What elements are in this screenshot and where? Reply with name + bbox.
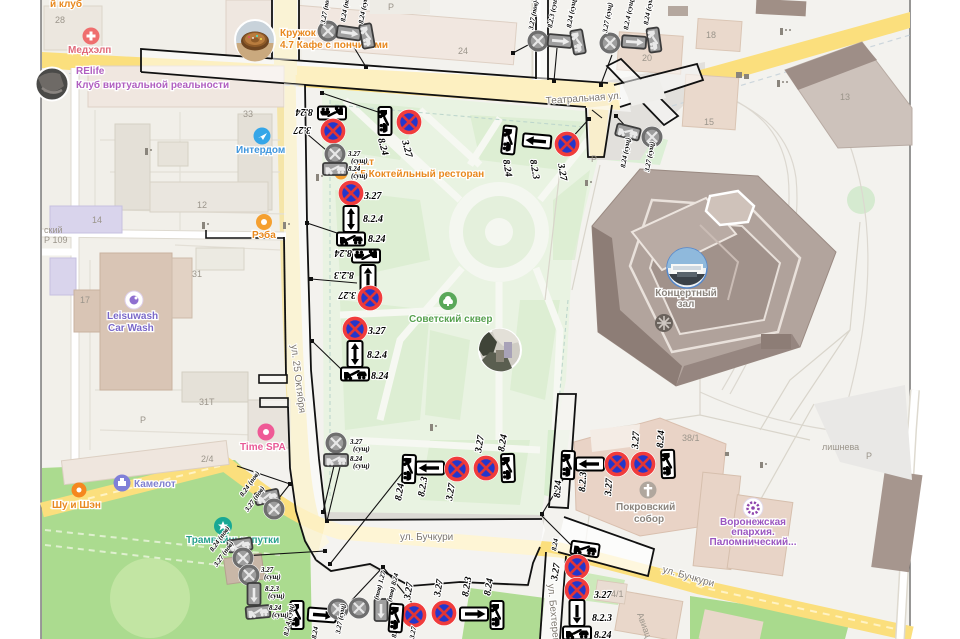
svg-text:(сущ): (сущ) — [351, 157, 368, 165]
svg-text:Паломнический...: Паломнический... — [710, 537, 797, 548]
svg-text:3.27: 3.27 — [338, 289, 358, 300]
svg-text:Р: Р — [866, 451, 872, 461]
svg-text:ский: ский — [44, 225, 63, 235]
svg-text:лишнева: лишнева — [822, 442, 859, 452]
svg-text:Советский сквер: Советский сквер — [409, 314, 492, 325]
svg-text:Leisuwash: Leisuwash — [107, 311, 158, 322]
svg-text:(сущ): (сущ) — [351, 172, 368, 180]
svg-text:8.24: 8.24 — [655, 430, 667, 448]
svg-text:12: 12 — [197, 200, 207, 210]
svg-text:зал: зал — [678, 299, 695, 310]
svg-text:31T: 31T — [199, 397, 215, 407]
svg-text:3.27: 3.27 — [603, 477, 615, 497]
svg-text:8.24: 8.24 — [296, 106, 314, 117]
svg-text:й клуб: й клуб — [50, 0, 82, 10]
svg-text:(сущ): (сущ) — [264, 573, 281, 581]
svg-text:8.2.3: 8.2.3 — [592, 613, 612, 624]
svg-text:3.27: 3.27 — [630, 430, 642, 450]
svg-text:Клуб виртуальной реальности: Клуб виртуальной реальности — [76, 79, 229, 91]
svg-text:8.2.4: 8.2.4 — [367, 350, 387, 361]
svg-text:33: 33 — [243, 109, 253, 119]
svg-text:3.27: 3.27 — [363, 191, 383, 202]
svg-text:Р: Р — [591, 154, 597, 164]
svg-text:(сущ): (сущ) — [353, 445, 370, 453]
svg-text:14: 14 — [92, 215, 102, 225]
svg-text:3.27: 3.27 — [293, 124, 313, 135]
svg-text:8.2.4: 8.2.4 — [363, 214, 383, 225]
svg-text:RElife: RElife — [76, 66, 105, 77]
svg-text:8.24: 8.24 — [368, 234, 386, 245]
svg-text:Шу и Шэн: Шу и Шэн — [52, 500, 101, 511]
svg-text:2/4: 2/4 — [201, 454, 214, 464]
svg-text:8.2.3: 8.2.3 — [577, 471, 589, 492]
svg-text:8.24: 8.24 — [594, 630, 612, 639]
svg-text:Р 109: Р 109 — [44, 235, 68, 245]
svg-text:Car Wash: Car Wash — [108, 323, 154, 334]
svg-text:ул. Бучкури: ул. Бучкури — [400, 532, 453, 543]
svg-text:(сущ): (сущ) — [272, 611, 289, 619]
svg-text:3.27: 3.27 — [593, 590, 613, 601]
svg-text:Time SPA: Time SPA — [240, 442, 286, 453]
svg-text:15: 15 — [704, 117, 714, 127]
svg-text:Покровский: Покровский — [616, 502, 675, 513]
svg-text:8.24: 8.24 — [371, 371, 389, 382]
svg-text:8.2.3: 8.2.3 — [334, 269, 354, 280]
svg-text:18: 18 — [706, 30, 716, 40]
svg-text:Концертный: Концертный — [655, 288, 717, 299]
svg-text:20: 20 — [642, 53, 652, 63]
svg-text:(сущ): (сущ) — [353, 462, 370, 470]
svg-text:28: 28 — [55, 15, 65, 25]
svg-text:8.24: 8.24 — [552, 480, 564, 498]
svg-text:Р: Р — [388, 2, 394, 12]
svg-text:Интердом: Интердом — [236, 145, 285, 156]
svg-text:13: 13 — [840, 92, 850, 102]
svg-text:Медхэлп: Медхэлп — [68, 45, 111, 56]
svg-text:4.5 Коктейльный ресторан: 4.5 Коктейльный ресторан — [352, 169, 484, 180]
svg-text:Камелот: Камелот — [134, 479, 176, 490]
svg-text:31: 31 — [192, 269, 202, 279]
svg-text:17: 17 — [80, 295, 90, 305]
svg-text:(сущ): (сущ) — [268, 592, 285, 600]
svg-text:38/1: 38/1 — [682, 433, 700, 443]
svg-text:Кружок: Кружок — [280, 28, 317, 39]
svg-text:Р: Р — [140, 415, 146, 425]
svg-text:8.24: 8.24 — [335, 247, 353, 258]
svg-text:3.27: 3.27 — [367, 326, 387, 337]
svg-text:собор: собор — [634, 513, 664, 525]
svg-text:Рэба: Рэба — [252, 229, 276, 241]
svg-text:24: 24 — [458, 46, 468, 56]
